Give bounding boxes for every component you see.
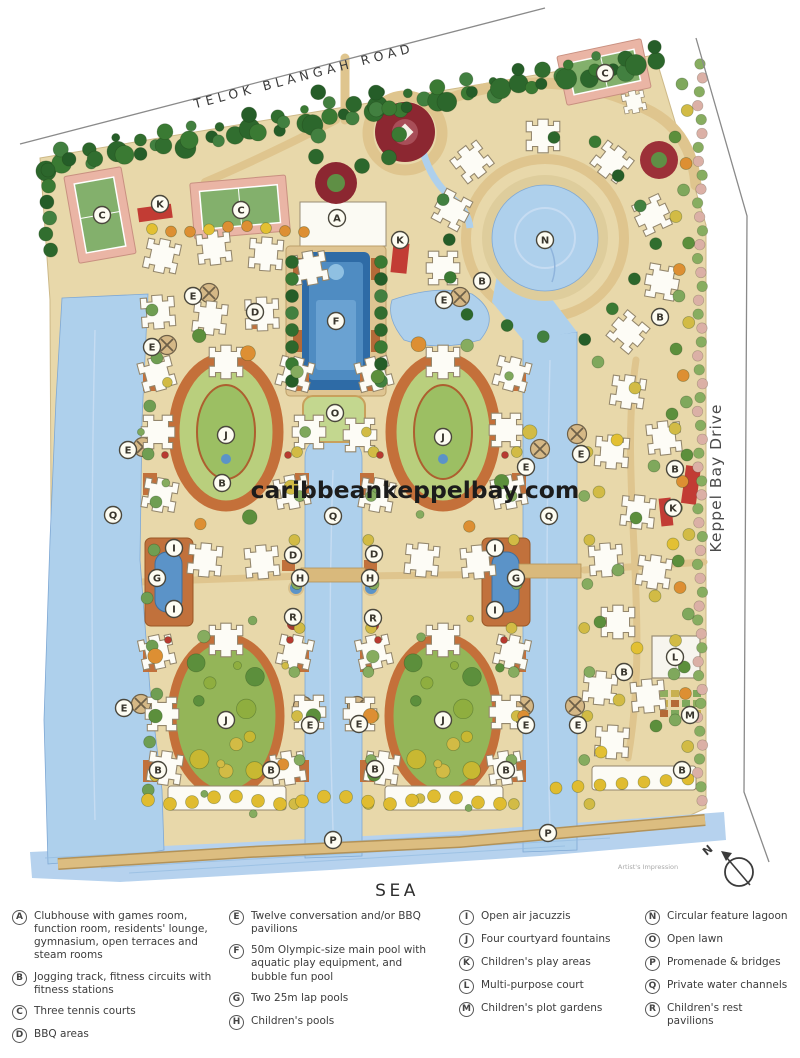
svg-text:Q: Q (329, 512, 338, 523)
legend-item-F: F50m Olympic-size main pool with aquatic… (229, 944, 445, 983)
legend-label-I: Open air jacuzzis (481, 910, 633, 925)
legend-key-M: M (459, 1002, 474, 1017)
legend-item-N: NCircular feature lagoon (645, 910, 800, 925)
legend-item-L: LMulti-purpose court (459, 979, 645, 994)
map-marker-B: B (214, 475, 231, 492)
legend-label-P: Promenade & bridges (667, 956, 788, 971)
svg-text:D: D (251, 308, 259, 319)
artist-impression-note: Artist's Impression (618, 863, 678, 871)
map-marker-I: I (166, 540, 183, 557)
legend-label-F: 50m Olympic-size main pool with aquatic … (251, 944, 433, 983)
legend-item-B: BJogging track, fitness circuits with fi… (12, 971, 225, 997)
map-marker-E: E (351, 716, 368, 733)
legend-label-E: Twelve conversation and/or BBQ pavilions (251, 910, 433, 936)
legend-item-A: AClubhouse with games room, function roo… (12, 910, 225, 963)
map-marker-Q: Q (325, 508, 342, 525)
svg-text:M: M (685, 711, 695, 722)
svg-text:E: E (441, 296, 448, 307)
map-marker-H: H (362, 570, 379, 587)
svg-text:N: N (541, 236, 549, 247)
svg-text:R: R (369, 614, 377, 625)
svg-text:I: I (172, 544, 176, 555)
svg-text:O: O (331, 409, 340, 420)
svg-text:B: B (671, 465, 679, 476)
svg-text:C: C (601, 69, 608, 80)
svg-text:K: K (156, 200, 165, 211)
legend-label-N: Circular feature lagoon (667, 910, 788, 925)
legend-key-Q: Q (645, 979, 660, 994)
svg-text:B: B (656, 313, 664, 324)
legend-item-M: MChildren's plot gardens (459, 1002, 645, 1017)
map-marker-F: F (328, 313, 345, 330)
svg-text:G: G (153, 574, 161, 585)
map-marker-H: H (292, 570, 309, 587)
legend-key-E: E (229, 910, 244, 925)
legend-label-G: Two 25m lap pools (251, 992, 433, 1007)
map-marker-I: I (487, 540, 504, 557)
map-marker-E: E (116, 700, 133, 717)
facilities-legend: AClubhouse with games room, function roo… (0, 898, 800, 1058)
legend-item-J: JFour courtyard fountains (459, 933, 645, 948)
svg-text:E: E (125, 446, 132, 457)
map-marker-D: D (247, 304, 264, 321)
map-marker-Q: Q (105, 507, 122, 524)
svg-text:B: B (371, 765, 379, 776)
map-marker-B: B (150, 762, 167, 779)
legend-key-F: F (229, 944, 244, 959)
legend-key-K: K (459, 956, 474, 971)
road-label-keppel-bay: Keppel Bay Drive (707, 404, 725, 553)
legend-label-D: BBQ areas (34, 1028, 213, 1043)
map-marker-J: J (435, 712, 452, 729)
svg-text:H: H (296, 574, 304, 585)
svg-text:B: B (478, 277, 486, 288)
legend-item-Q: QPrivate water channels (645, 979, 800, 994)
svg-text:A: A (333, 214, 341, 225)
legend-key-L: L (459, 979, 474, 994)
site-plan-map: CKCAKCNBEBEDFEEQJBOQDHIGIJEEQBKIGIDHRREJ… (0, 0, 800, 902)
legend-key-D: D (12, 1028, 27, 1043)
map-marker-E: E (570, 717, 587, 734)
svg-text:Q: Q (545, 512, 554, 523)
svg-text:D: D (289, 551, 297, 562)
svg-text:E: E (149, 343, 156, 354)
legend-item-H: HChildren's pools (229, 1015, 445, 1030)
svg-text:E: E (356, 720, 363, 731)
svg-text:C: C (237, 206, 244, 217)
map-marker-K: K (152, 196, 169, 213)
svg-text:J: J (440, 716, 445, 727)
map-marker-J: J (218, 712, 235, 729)
map-marker-J: J (218, 427, 235, 444)
legend-item-I: IOpen air jacuzzis (459, 910, 645, 925)
svg-text:P: P (329, 836, 336, 847)
map-marker-R: R (285, 609, 302, 626)
map-marker-G: G (508, 570, 525, 587)
svg-text:B: B (154, 766, 162, 777)
svg-text:E: E (523, 463, 530, 474)
map-marker-B: B (474, 273, 491, 290)
svg-text:B: B (502, 766, 510, 777)
compass-n-label: N (700, 842, 715, 858)
svg-text:J: J (440, 433, 445, 444)
map-marker-E: E (518, 459, 535, 476)
map-marker-B: B (367, 761, 384, 778)
legend-key-C: C (12, 1005, 27, 1020)
map-marker-E: E (518, 717, 535, 734)
svg-text:H: H (366, 574, 374, 585)
legend-item-O: OOpen lawn (645, 933, 800, 948)
legend-column-3: IOpen air jacuzzisJFour courtyard founta… (445, 898, 645, 1058)
map-marker-L: L (667, 649, 684, 666)
map-marker-E: E (185, 288, 202, 305)
map-marker-B: B (616, 664, 633, 681)
map-marker-P: P (540, 825, 557, 842)
svg-text:E: E (307, 721, 314, 732)
legend-item-D: DBBQ areas (12, 1028, 225, 1043)
map-marker-D: D (285, 547, 302, 564)
map-marker-E: E (120, 442, 137, 459)
legend-key-P: P (645, 956, 660, 971)
legend-item-P: PPromenade & bridges (645, 956, 800, 971)
legend-key-H: H (229, 1015, 244, 1030)
map-marker-A: A (329, 210, 346, 227)
legend-label-Q: Private water channels (667, 979, 788, 994)
map-marker-N: N (537, 232, 554, 249)
legend-key-G: G (229, 992, 244, 1007)
legend-column-2: ETwelve conversation and/or BBQ pavilion… (225, 898, 445, 1058)
svg-text:B: B (218, 479, 226, 490)
legend-label-R: Children's rest pavilions (667, 1002, 788, 1028)
svg-text:I: I (493, 606, 497, 617)
legend-item-E: ETwelve conversation and/or BBQ pavilion… (229, 910, 445, 936)
map-marker-Q: Q (541, 508, 558, 525)
svg-text:J: J (223, 716, 228, 727)
legend-column-4: NCircular feature lagoonOOpen lawnPProme… (645, 898, 800, 1058)
site-plan-page: CKCAKCNBEBEDFEEQJBOQDHIGIJEEQBKIGIDHRREJ… (0, 0, 800, 1058)
map-marker-K: K (665, 500, 682, 517)
legend-label-B: Jogging track, fitness circuits with fit… (34, 971, 213, 997)
map-marker-I: I (487, 602, 504, 619)
svg-text:R: R (289, 613, 297, 624)
legend-label-M: Children's plot gardens (481, 1002, 633, 1017)
legend-key-J: J (459, 933, 474, 948)
svg-text:B: B (267, 766, 275, 777)
svg-text:E: E (121, 704, 128, 715)
svg-text:F: F (333, 317, 340, 328)
legend-label-J: Four courtyard fountains (481, 933, 633, 948)
legend-item-G: GTwo 25m lap pools (229, 992, 445, 1007)
legend-item-R: RChildren's rest pavilions (645, 1002, 800, 1028)
svg-text:I: I (493, 544, 497, 555)
legend-key-N: N (645, 910, 660, 925)
map-marker-C: C (597, 65, 614, 82)
legend-label-H: Children's pools (251, 1015, 433, 1030)
svg-text:C: C (98, 211, 105, 222)
map-marker-C: C (233, 202, 250, 219)
map-marker-D: D (366, 546, 383, 563)
map-marker-B: B (652, 309, 669, 326)
legend-label-K: Children's play areas (481, 956, 633, 971)
watermark-text: caribbeankeppelbay.com (251, 476, 580, 504)
map-marker-O: O (327, 405, 344, 422)
svg-text:L: L (672, 653, 679, 664)
legend-label-L: Multi-purpose court (481, 979, 633, 994)
svg-text:B: B (678, 766, 686, 777)
legend-label-O: Open lawn (667, 933, 788, 948)
svg-text:G: G (512, 574, 520, 585)
map-marker-B: B (667, 461, 684, 478)
map-marker-E: E (573, 446, 590, 463)
map-marker-R: R (365, 610, 382, 627)
svg-text:P: P (544, 829, 551, 840)
map-marker-E: E (144, 339, 161, 356)
svg-text:E: E (575, 721, 582, 732)
svg-text:E: E (578, 450, 585, 461)
svg-text:E: E (523, 721, 530, 732)
legend-key-O: O (645, 933, 660, 948)
legend-item-K: KChildren's play areas (459, 956, 645, 971)
svg-text:B: B (620, 668, 628, 679)
map-marker-I: I (166, 601, 183, 618)
map-marker-E: E (436, 292, 453, 309)
svg-text:J: J (223, 431, 228, 442)
legend-label-A: Clubhouse with games room, function room… (34, 910, 213, 963)
legend-item-C: CThree tennis courts (12, 1005, 225, 1020)
legend-key-I: I (459, 910, 474, 925)
map-marker-M: M (682, 707, 699, 724)
legend-key-B: B (12, 971, 27, 986)
map-marker-C: C (94, 207, 111, 224)
map-marker-B: B (674, 762, 691, 779)
legend-key-R: R (645, 1002, 660, 1017)
svg-text:I: I (172, 605, 176, 616)
map-marker-J: J (435, 429, 452, 446)
compass: N (700, 842, 753, 886)
legend-key-A: A (12, 910, 27, 925)
map-marker-P: P (325, 832, 342, 849)
map-marker-E: E (302, 717, 319, 734)
map-marker-G: G (149, 570, 166, 587)
map-marker-B: B (498, 762, 515, 779)
map-marker-B: B (263, 762, 280, 779)
svg-text:K: K (669, 504, 678, 515)
legend-label-C: Three tennis courts (34, 1005, 213, 1020)
svg-text:K: K (396, 236, 405, 247)
legend-column-1: AClubhouse with games room, function roo… (0, 898, 225, 1058)
map-marker-K: K (392, 232, 409, 249)
svg-text:E: E (190, 292, 197, 303)
svg-text:D: D (370, 550, 378, 561)
svg-text:Q: Q (109, 511, 118, 522)
